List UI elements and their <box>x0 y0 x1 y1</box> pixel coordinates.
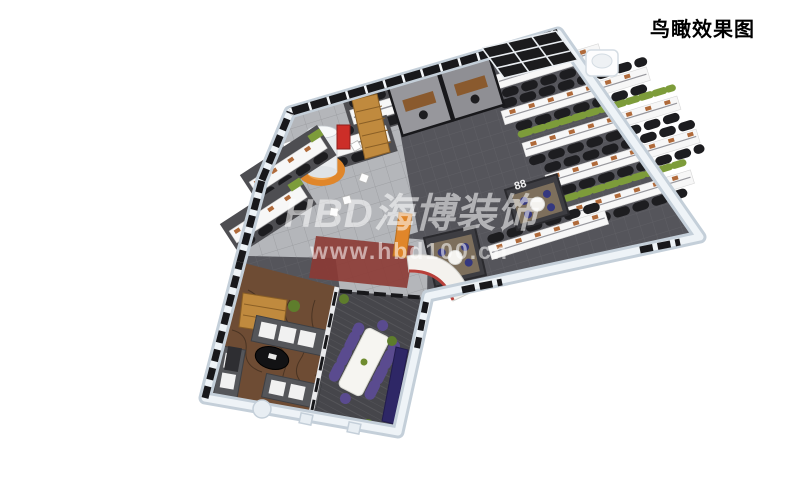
plant <box>288 300 300 312</box>
roof-vent <box>592 54 612 68</box>
page-title: 鸟瞰效果图 <box>650 13 800 42</box>
entrance-bump <box>253 400 271 418</box>
render-canvas: 88 <box>0 0 800 476</box>
floorplan-render: 88 <box>0 0 800 476</box>
red-cabinet <box>337 125 350 149</box>
plant <box>339 294 349 304</box>
plant <box>387 336 397 346</box>
